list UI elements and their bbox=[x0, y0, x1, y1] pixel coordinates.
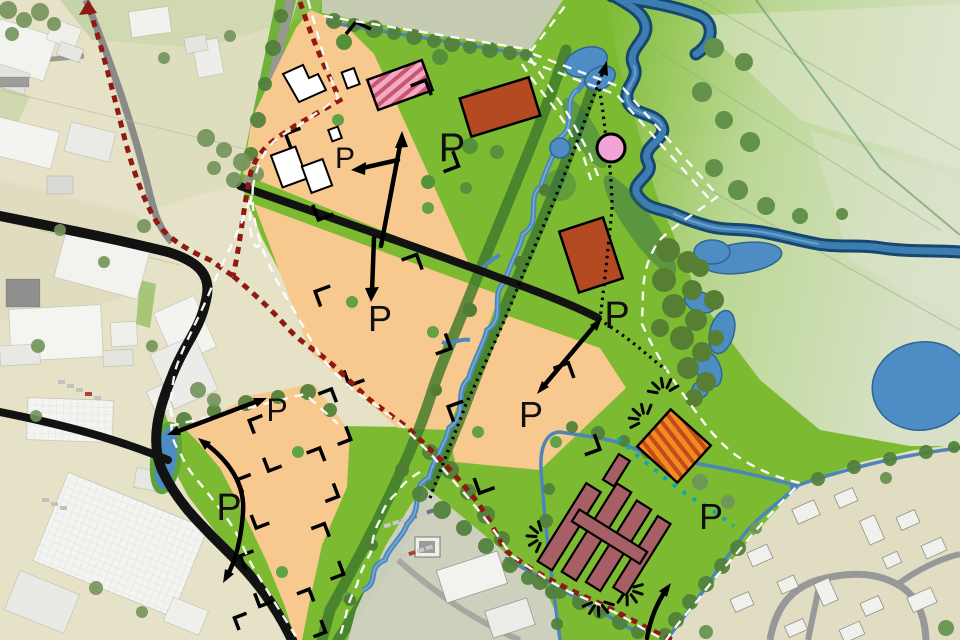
parking-marker: P bbox=[335, 142, 355, 175]
landmark-pink-circle bbox=[597, 134, 625, 162]
parking-marker: P bbox=[368, 298, 392, 339]
parking-marker: P bbox=[266, 392, 287, 428]
parking-marker: P bbox=[604, 295, 629, 337]
arrow-plot-central bbox=[372, 238, 374, 292]
parking-marker: P bbox=[699, 496, 723, 537]
masterplan-canvas: P P P P P P P P bbox=[0, 0, 960, 640]
parking-marker: P bbox=[519, 394, 543, 435]
masterplan-map: P P P P P P P P bbox=[0, 0, 960, 640]
parking-marker: P bbox=[439, 126, 466, 170]
parking-marker: P bbox=[216, 487, 241, 529]
